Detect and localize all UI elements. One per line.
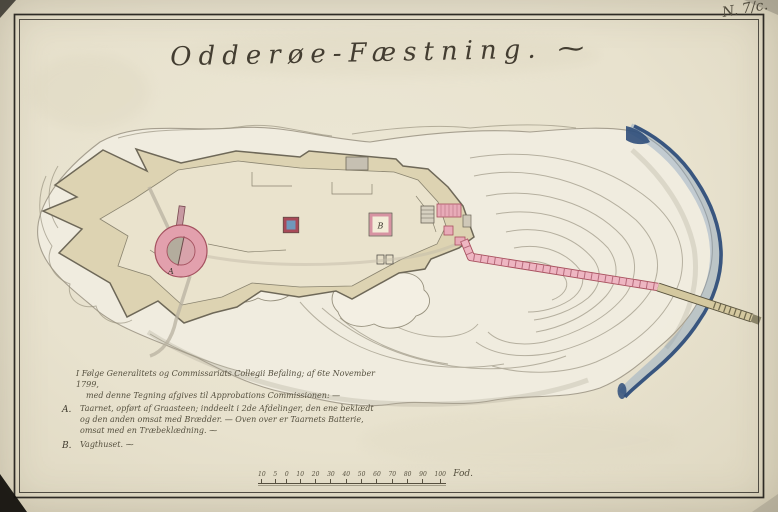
scale-tick: 20 <box>312 472 320 483</box>
guardhouse-label: B <box>377 222 384 231</box>
map-sheet: A B <box>0 0 778 512</box>
scale-bar: 1050102030405060708090100 Fod. <box>258 472 446 486</box>
legend-key-b: B. <box>62 440 78 452</box>
scale-tick: 5 <box>273 472 277 483</box>
scale-tick: 10 <box>296 472 304 483</box>
scale-tick: 80 <box>404 472 412 483</box>
legend-block: I Følge Generalitets og Commissariats Co… <box>62 369 384 452</box>
guardhouse-b: B <box>369 213 392 236</box>
scale-tick: 100 <box>435 472 446 483</box>
scale-tick: 0 <box>285 472 289 483</box>
scale-tick: 60 <box>373 472 381 483</box>
legend-text-a: Taarnet, opført af Graasteen; inddeelt i… <box>80 404 384 436</box>
legend-item-a: A. Taarnet, opført af Graasteen; inddeel… <box>62 404 384 436</box>
scale-tick: 40 <box>342 472 350 483</box>
north-wall-building <box>346 157 368 170</box>
scale-tick: 90 <box>419 472 427 483</box>
legend-key-a: A. <box>62 404 78 436</box>
legend-item-b: B. Vagthuset. ⁓ <box>62 440 384 452</box>
powder-magazine <box>283 217 299 233</box>
scale-tick: 30 <box>327 472 335 483</box>
scale-ticks: 1050102030405060708090100 <box>258 472 446 483</box>
legend-intro-line-1: I Følge Generalitets og Commissariats Co… <box>76 369 384 391</box>
scale-unit-label: Fod. <box>453 469 473 479</box>
scale-tick: 50 <box>358 472 366 483</box>
scale-baseline-secondary <box>258 485 446 486</box>
tower-label: A <box>167 267 174 276</box>
scale-baseline <box>258 483 446 484</box>
scale-tick: 10 <box>258 472 266 483</box>
legend-text-b: Vagthuset. ⁓ <box>80 440 384 452</box>
scale-tick: 70 <box>388 472 396 483</box>
legend-intro-line-2: med denne Tegning afgives til Approbatio… <box>86 391 384 402</box>
